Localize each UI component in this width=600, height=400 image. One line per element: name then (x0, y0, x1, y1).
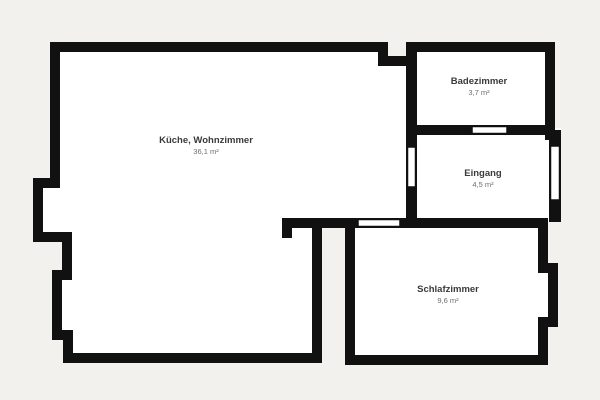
wall-segment (50, 42, 388, 52)
top-notch-cutout (388, 42, 406, 56)
wall-segment (52, 270, 62, 340)
wall-segment (312, 228, 322, 363)
wall-segment (345, 218, 355, 365)
room-name-label: Schlafzimmer (417, 284, 479, 295)
door-opening (472, 127, 507, 134)
wall-segment (378, 42, 388, 66)
room-area-label: 36,1 m² (193, 147, 219, 156)
wall-segment (345, 355, 548, 365)
wall-segment (63, 353, 322, 363)
wall-segment (50, 42, 60, 188)
wall-segment (282, 218, 292, 238)
floor-plan: Küche, Wohnzimmer 36,1 m² Badezimmer 3,7… (0, 0, 600, 400)
room-area-label: 3,7 m² (468, 88, 490, 97)
room-name-label: Küche, Wohnzimmer (159, 135, 253, 146)
window (551, 146, 560, 200)
room-area-label: 9,6 m² (437, 296, 459, 305)
wall-segment (538, 317, 548, 365)
wall-segment (406, 42, 555, 52)
door-opening (408, 147, 416, 187)
door-opening (358, 220, 400, 227)
wall-segment (388, 56, 407, 66)
room-area-label: 4,5 m² (472, 180, 494, 189)
wall-segment (545, 42, 555, 135)
room-name-label: Badezimmer (451, 76, 508, 87)
room-name-label: Eingang (464, 168, 502, 179)
wall-segment (406, 42, 417, 228)
floor-plan-canvas: Küche, Wohnzimmer 36,1 m² Badezimmer 3,7… (0, 0, 600, 400)
